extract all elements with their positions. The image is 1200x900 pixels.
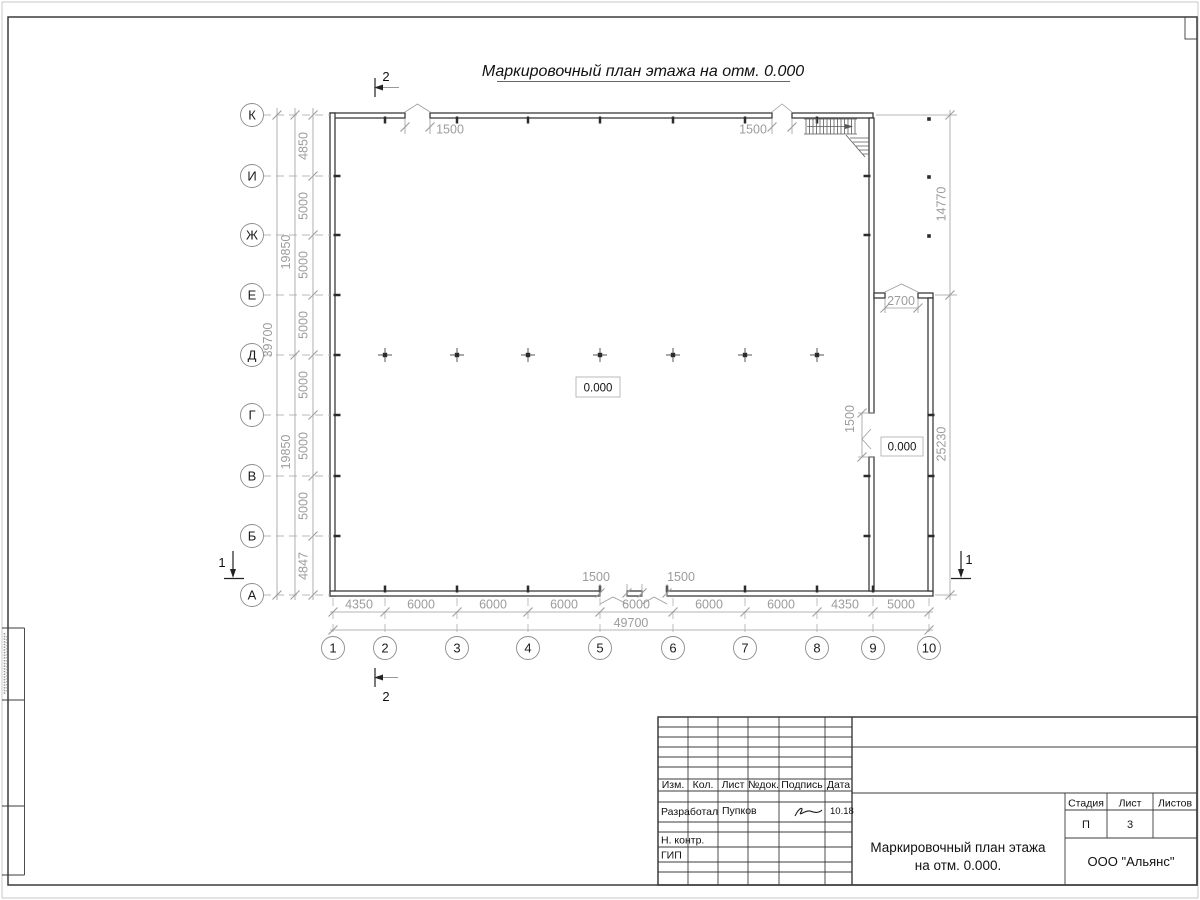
axis-label: А (248, 588, 257, 603)
axis-label: Ж (246, 228, 258, 243)
dimension-lines (277, 108, 957, 630)
dim-label: 6000 (550, 598, 578, 612)
dim-label-opening: 1500 (739, 123, 767, 137)
axis-label: Е (248, 288, 257, 303)
axis-lines (263, 115, 929, 636)
tb-gip: ГИП (661, 850, 682, 862)
tb-stage-label: Стадия (1068, 798, 1104, 810)
axis-label: Б (248, 529, 257, 544)
section-mark-2-bottom: 2 (374, 668, 398, 704)
section-mark-1-left: 1 (218, 551, 244, 579)
section-mark-1-right: 1 (951, 551, 973, 579)
axis-label: И (247, 169, 256, 184)
dim-label: 5000 (297, 492, 311, 520)
dim-label: 19850 (279, 235, 293, 270)
axis-label: 1 (329, 641, 336, 656)
axis-label: Д (248, 348, 257, 363)
dim-label-opening: 1500 (582, 570, 610, 584)
dimension-labels: 4850 5000 5000 5000 5000 5000 5000 4847 … (261, 123, 949, 631)
tb-ncontr: Н. контр. (661, 835, 704, 847)
dim-label: 5000 (297, 311, 311, 339)
dim-label: 6000 (407, 598, 435, 612)
tb-developer-role: Разработал (661, 806, 718, 818)
tb-developer-date: 10.18 (830, 806, 854, 817)
opening-marks (405, 104, 918, 604)
sheet-title: Маркировочный план этажа на отм. 0.000 (482, 63, 804, 80)
level-mark-annex: 0.000 (888, 442, 917, 454)
axis-label: 4 (524, 641, 531, 656)
dim-label: 6000 (767, 598, 795, 612)
dim-label-opening: 2700 (887, 294, 915, 308)
tb-col-data: Дата (827, 779, 850, 791)
tb-sheet-label: Лист (1119, 798, 1142, 810)
section-label: 1 (218, 555, 225, 570)
section-mark-2-top: 2 (374, 69, 399, 97)
dim-label-opening: 1500 (436, 123, 464, 137)
tb-col-izm: Изм. (662, 779, 685, 791)
page-frame (2, 2, 1198, 898)
axis-label: В (248, 469, 257, 484)
dim-label: 4847 (297, 552, 311, 580)
section-label: 2 (382, 689, 389, 704)
dim-label: 5000 (297, 432, 311, 460)
section-label: 1 (965, 552, 972, 567)
dim-label: 25230 (935, 427, 949, 462)
dim-label: 6000 (695, 598, 723, 612)
dim-label: 5000 (887, 598, 915, 612)
tb-doc-title-line1: Маркировочный план этажа (870, 840, 1046, 855)
dim-label: 6000 (479, 598, 507, 612)
tb-doc-title-line2: на отм. 0.000. (915, 858, 1001, 873)
walls (330, 113, 933, 596)
wall-column-ticks (334, 117, 935, 593)
tb-col-podpis: Подпись (781, 779, 823, 791)
axis-label: 5 (596, 641, 603, 656)
axis-label: Г (248, 408, 255, 423)
tb-company: ООО "Альянс" (1088, 854, 1175, 869)
dim-label: 4350 (345, 598, 373, 612)
dim-label: 19850 (279, 435, 293, 470)
tb-developer-name: Пупков (722, 805, 757, 817)
dim-label-opening: 1500 (843, 405, 857, 433)
axis-bubbles-bottom: 1 2 3 4 5 6 7 8 9 10 (322, 637, 941, 660)
level-mark-center: 0.000 (584, 383, 613, 395)
title-block: Изм. Кол. Лист №док. Подпись Дата Разраб… (658, 717, 1197, 885)
floor-plan-drawing: Маркировочный план этажа на отм. 0.000 (0, 0, 1200, 900)
dim-label: 14770 (935, 187, 949, 222)
interior-columns (378, 348, 824, 362)
dim-label: 5000 (297, 251, 311, 279)
dimension-ticks (273, 111, 955, 635)
dim-label-total-bottom: 49700 (614, 616, 649, 630)
axis-label: 2 (381, 641, 388, 656)
dim-label: 6000 (622, 598, 650, 612)
tb-col-ndok: №док. (748, 779, 779, 791)
axis-label: 7 (741, 641, 748, 656)
dim-label: 4850 (297, 132, 311, 160)
dim-label: 5000 (297, 371, 311, 399)
tb-col-list: Лист (722, 779, 745, 791)
side-stamp (2, 628, 25, 875)
signature-graphic (795, 808, 822, 816)
drawing-sheet: Маркировочный план этажа на отм. 0.000 (0, 0, 1200, 900)
axis-label: 8 (813, 641, 820, 656)
tb-sheet-value: 3 (1127, 819, 1133, 831)
tb-col-kol: Кол. (693, 779, 714, 791)
axis-bubbles-left: К И Ж Е Д Г В Б А (241, 104, 264, 607)
dim-label: 5000 (297, 192, 311, 220)
dim-label-opening: 1500 (667, 570, 695, 584)
axis-label: К (248, 108, 256, 123)
tb-stage-value: П (1082, 819, 1090, 831)
section-label: 2 (382, 69, 389, 84)
stairs (804, 119, 869, 157)
axis-label: 9 (869, 641, 876, 656)
tb-sheets-label: Листов (1158, 798, 1193, 810)
axis-label: 10 (922, 641, 936, 656)
axis-label: 3 (453, 641, 460, 656)
dim-label: 4350 (831, 598, 859, 612)
axis-label: 6 (669, 641, 676, 656)
corner-stamp-box (1185, 17, 1197, 39)
